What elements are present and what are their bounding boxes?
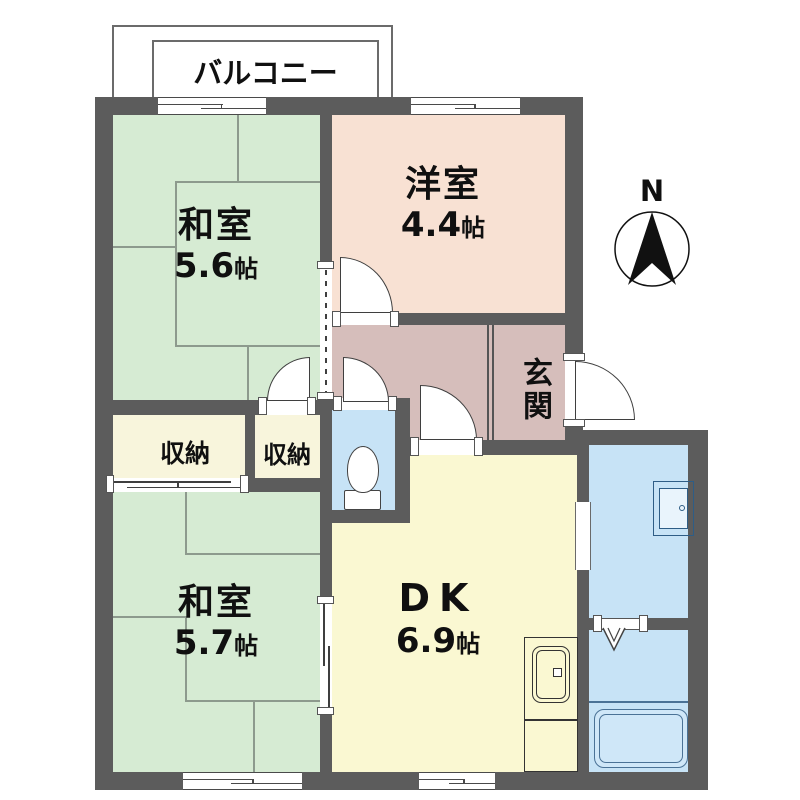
tatami-line [247,345,249,400]
accordion-door-icon [600,627,628,653]
window [411,97,520,115]
room-label-dk: DK 6.9帖 [352,576,524,661]
sliding-door [320,600,332,710]
door-swing-entrance [575,361,635,420]
door-jamb [563,353,585,361]
wall-segment [577,570,589,772]
wall-segment [395,398,410,523]
entrance-step-line [487,325,489,440]
tatami-line [185,553,320,555]
tatami-line [237,115,239,183]
window [419,772,495,790]
wall-segment [245,478,332,492]
floor-plan: バルコニー [0,0,800,800]
wall-segment [95,97,113,790]
doorway-washroom [575,502,591,570]
window [183,772,302,790]
doorway-dk [418,440,477,455]
kitchen-counter [524,637,578,772]
room-name: 和室 [126,204,306,247]
door-jamb [390,311,399,327]
room-name: 洋室 [353,163,533,206]
wall-segment [641,618,688,630]
closet-sliding-door [113,478,245,492]
door-jamb [317,392,334,400]
compass-label: N [620,174,684,208]
door-jamb [258,397,267,415]
wall-segment [320,395,332,600]
room-name: 和室 [126,581,306,624]
door-jamb [106,475,114,493]
door-jamb [639,615,648,632]
door-jamb [317,707,334,715]
doorway-closet [267,400,310,415]
balcony-label: バルコニー [152,50,379,92]
room-label-washitsu2: 和室 5.7帖 [126,581,306,663]
wall-segment [320,710,332,772]
tatami-line [185,483,187,555]
wall-segment [577,455,589,502]
sliding-door [320,268,332,395]
door-jamb [317,596,334,604]
tatami-line [253,700,255,772]
room-label-washitsu1: 和室 5.6帖 [126,204,306,286]
door-jamb [333,396,342,411]
room-name: DK [352,576,524,622]
entrance-step-line [492,325,494,440]
washing-machine-icon [653,481,694,536]
door-jamb [474,437,483,456]
bathtub-icon [589,701,688,771]
toilet-icon [344,446,384,511]
room-label-yoshitsu: 洋室 4.4帖 [353,163,533,245]
room-label-closet1: 収納 [130,434,240,470]
wall-segment [325,510,410,523]
door-jamb [317,261,334,269]
room-label-closet2: 収納 [251,435,323,470]
door-jamb [388,396,397,411]
door-jamb [240,475,249,493]
door-jamb [563,419,585,427]
door-jamb [410,437,419,456]
compass-icon [598,205,708,300]
tatami-line [175,181,320,183]
door-jamb [332,311,341,327]
wall-segment [320,115,332,268]
door-jamb [307,397,316,415]
doorway-yoshitsu [340,313,393,325]
window [158,97,266,115]
room-label-genkan: 玄関 [508,340,556,440]
